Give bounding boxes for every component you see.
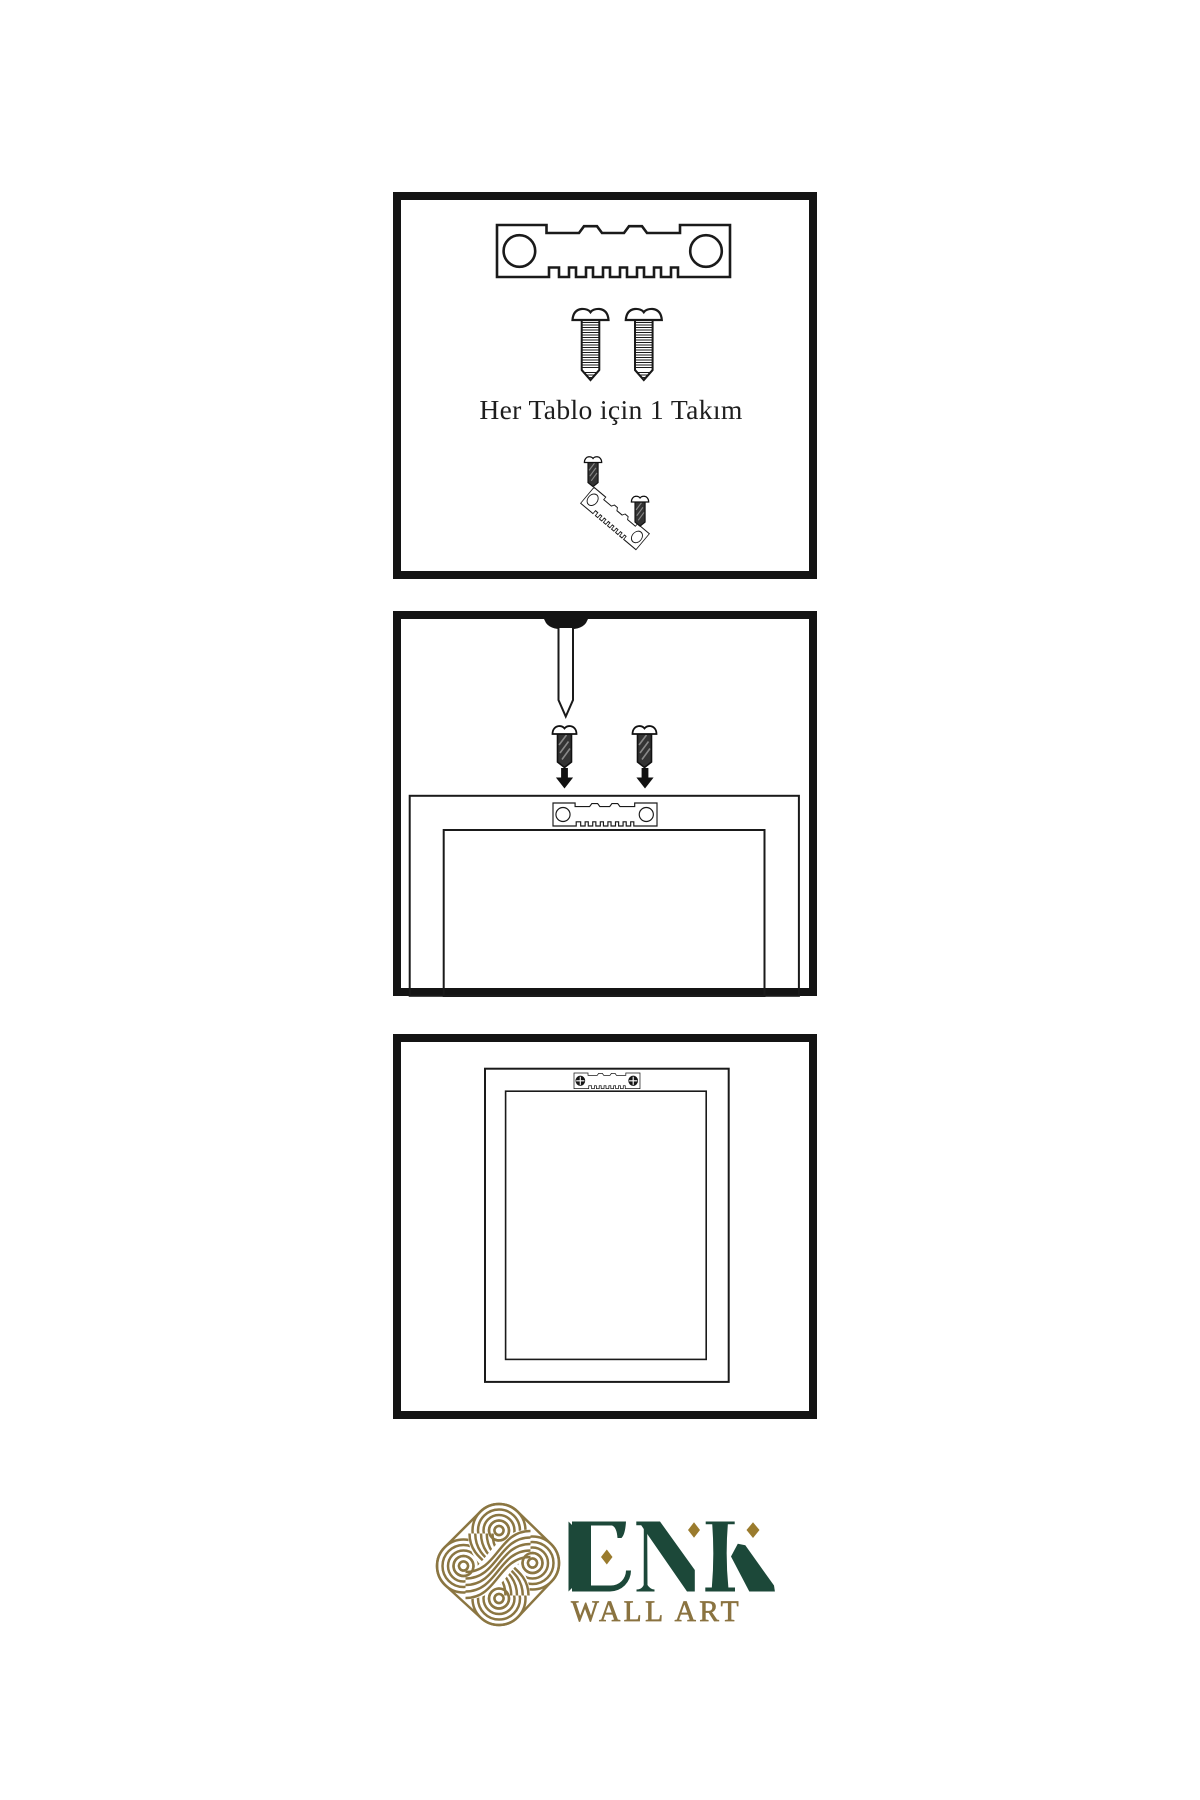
svg-text:Her Tablo için 1 Takım: Her Tablo için 1 Takım: [479, 394, 743, 425]
svg-text:WALL ART: WALL ART: [571, 1596, 742, 1628]
